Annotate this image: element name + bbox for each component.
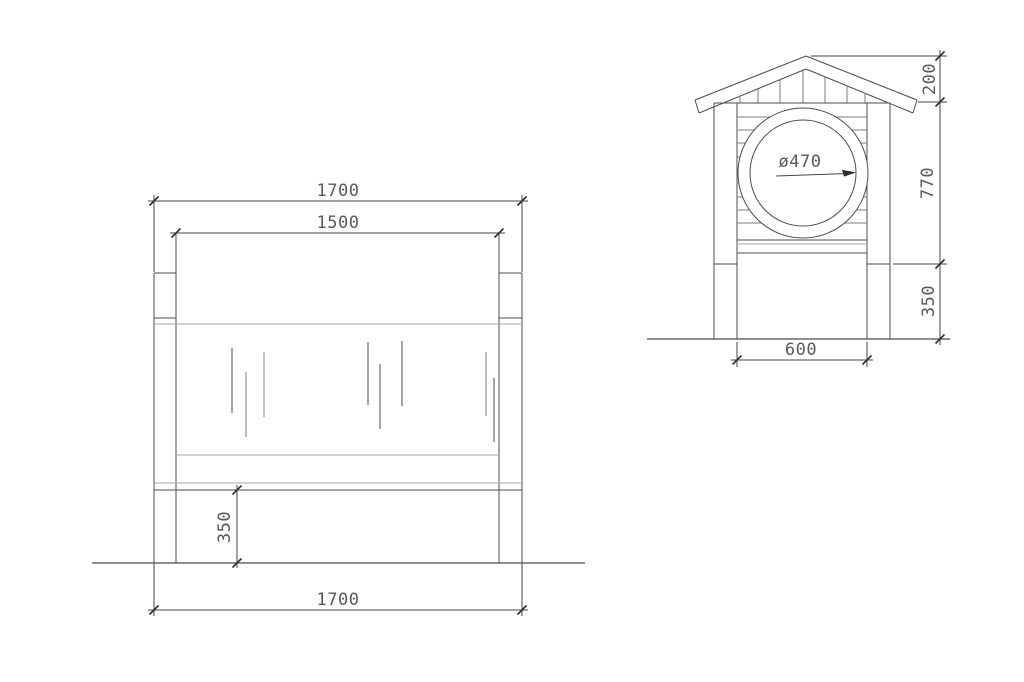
dim-label-front-ground-clearance: 350 [215, 511, 235, 543]
drawing-canvas: 1700 1500 350 1700 [0, 0, 1024, 682]
dim-front-panel-width: 1500 [170, 213, 505, 238]
dim-label-roof-rise: 200 [920, 63, 940, 95]
dim-label-side-ground-clearance: 350 [919, 285, 939, 317]
technical-drawing: 1700 1500 350 1700 [0, 0, 1024, 682]
side-elevation: ø470 200 770 350 600 [647, 50, 950, 367]
front-posts [154, 233, 522, 563]
dim-front-overall-width-bottom: 1700 [148, 563, 528, 616]
dim-label-front-panel-width: 1500 [317, 213, 360, 233]
dim-label-body-height: 770 [918, 167, 938, 199]
dim-front-ground-clearance: 350 [177, 485, 246, 568]
front-elevation: 1700 1500 350 1700 [92, 181, 585, 616]
gable-slats [714, 71, 890, 103]
dim-side-inner-width: 600 [731, 340, 873, 367]
dim-label-opening-diameter: ø470 [779, 152, 822, 172]
dim-label-front-overall-width-top: 1700 [317, 181, 360, 201]
front-panel-rails [154, 324, 522, 490]
front-board-grain-marks [232, 341, 494, 442]
dim-label-inner-width: 600 [785, 340, 817, 360]
dim-label-front-overall-width-bottom: 1700 [317, 590, 360, 610]
gable-roof [695, 56, 917, 113]
